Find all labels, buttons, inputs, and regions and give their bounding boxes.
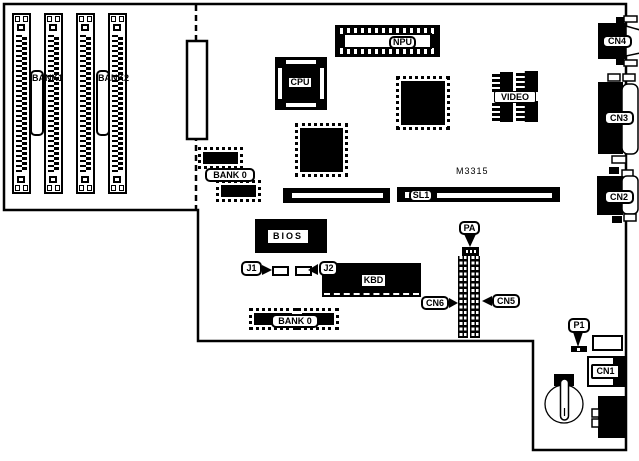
video-chip-4 [516, 101, 538, 122]
video-chip-3 [492, 101, 513, 122]
label-bank1: BANK1 [30, 70, 44, 136]
label-p1: P1 [568, 318, 590, 333]
label-j2: J2 [319, 261, 338, 276]
label-sl1: SL1 [409, 189, 433, 202]
label-cpu: CPU [287, 76, 313, 89]
label-cn2: CN2 [604, 190, 634, 204]
label-cn1: CN1 [591, 364, 620, 379]
motherboard-diagram: BANK1 BANK2 NPU CPU VIDEO BANK 0 SL1 M33… [0, 0, 639, 461]
bank0-chip-b [216, 180, 261, 202]
label-kbd: KBD [360, 273, 387, 288]
qfp-chip-1 [295, 123, 348, 177]
audio-jack-connector [598, 396, 626, 438]
label-cn6: CN6 [421, 296, 449, 310]
board-model-text: M3315 [456, 166, 489, 176]
label-cn3: CN3 [604, 111, 634, 125]
npu-socket [335, 25, 440, 57]
video-chip-1 [492, 72, 513, 92]
jumper-block-2 [296, 267, 311, 275]
simm-socket-4 [108, 13, 127, 194]
simm-socket-3 [76, 13, 95, 194]
label-bank0-top: BANK 0 [205, 168, 255, 182]
label-bios: BIOS [266, 228, 310, 245]
label-bank2: BANK2 [96, 70, 110, 136]
video-chip-2 [516, 71, 538, 92]
simm-socket-1 [12, 13, 31, 194]
fuse [593, 336, 622, 350]
label-j1: J1 [241, 261, 262, 276]
simm-socket-2 [44, 13, 63, 194]
bank0-chip-a [198, 147, 243, 169]
sl1-slot-left [283, 188, 390, 203]
label-cn4: CN4 [602, 35, 632, 48]
jumper-block-1 [273, 267, 288, 275]
label-video: VIDEO [494, 91, 536, 103]
qfp-chip-2 [396, 76, 450, 130]
label-bank0-bottom: BANK 0 [271, 314, 319, 328]
pin-header-col-2 [470, 256, 480, 338]
memory-card-connector [187, 41, 207, 139]
label-cn5: CN5 [492, 294, 520, 308]
label-pa: PA [459, 221, 480, 235]
pin-header-col-1 [458, 256, 468, 338]
label-npu: NPU [389, 36, 416, 49]
